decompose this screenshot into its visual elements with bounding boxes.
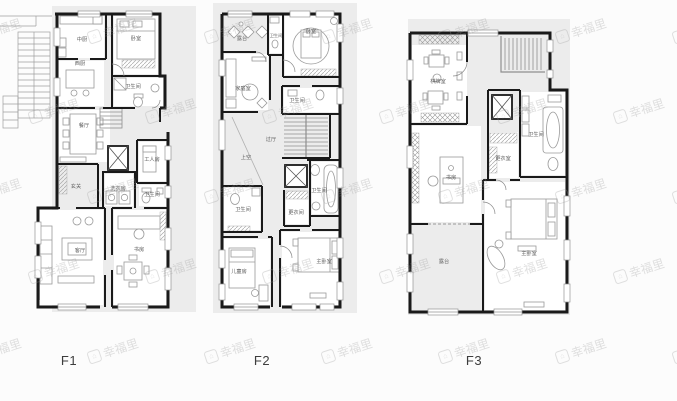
room-label: 玄关 — [71, 182, 81, 190]
room-label: 上空 — [241, 153, 251, 161]
room-label: 卫生间 — [289, 96, 305, 104]
room-label: 卫生间 — [270, 32, 283, 39]
room-label: 更衣间 — [288, 208, 304, 216]
room-label: 家庭室 — [235, 84, 251, 92]
room-label: 儿童房 — [231, 267, 247, 275]
room-label: 卫生间 — [528, 130, 544, 138]
room-label: 西厨 — [75, 60, 85, 67]
room-label: 棋牌室 — [430, 77, 446, 85]
room-label: 卫生间 — [125, 82, 141, 90]
room-label: 露台 — [237, 34, 247, 42]
room-label: 主卧室 — [316, 257, 332, 265]
room-label: 卧室 — [306, 27, 316, 35]
room-label: 卫生间 — [144, 190, 160, 198]
room-label: 餐厅 — [79, 121, 89, 129]
room-label: 更衣室 — [495, 154, 511, 162]
elevator — [108, 146, 128, 170]
room-label: 卫生间 — [235, 205, 251, 213]
room-label: 主卧室 — [521, 249, 537, 257]
floorplans-canvas: 中厨 卧室 西厨 卫生间 餐厅 工人房 玄关 洗衣房 卫生间 客厅 书房 — [0, 0, 677, 401]
room-label: 书房 — [134, 245, 144, 253]
floorplan-page: 中厨 卧室 西厨 卫生间 餐厅 工人房 玄关 洗衣房 卫生间 客厅 书房 — [0, 0, 677, 401]
room-label: 客厅 — [75, 246, 85, 254]
room-label: 卧室 — [131, 34, 141, 42]
room-label: 卫生间 — [311, 186, 327, 194]
floorplan-f2: 露台 卧室 卫生间 家庭室 卫生间 过厅 上空 卫生间 更衣间 卫生间 儿童房 … — [213, 3, 357, 313]
floorplan-f1: 中厨 卧室 西厨 卫生间 餐厅 工人房 玄关 洗衣房 卫生间 客厅 书房 — [0, 6, 196, 312]
room-label: 书房 — [446, 173, 456, 181]
room-label: 中厨 — [77, 35, 87, 43]
room-label: 露台 — [439, 257, 449, 265]
elevator — [285, 165, 307, 187]
room-label: 洗衣房 — [110, 184, 126, 192]
room-label: 过厅 — [266, 135, 276, 143]
floorplan-f3: 棋牌室 卫生间 更衣室 书房 露台 主卧室 — [407, 19, 570, 315]
elevator — [492, 95, 512, 119]
room-label: 工人房 — [144, 155, 160, 163]
